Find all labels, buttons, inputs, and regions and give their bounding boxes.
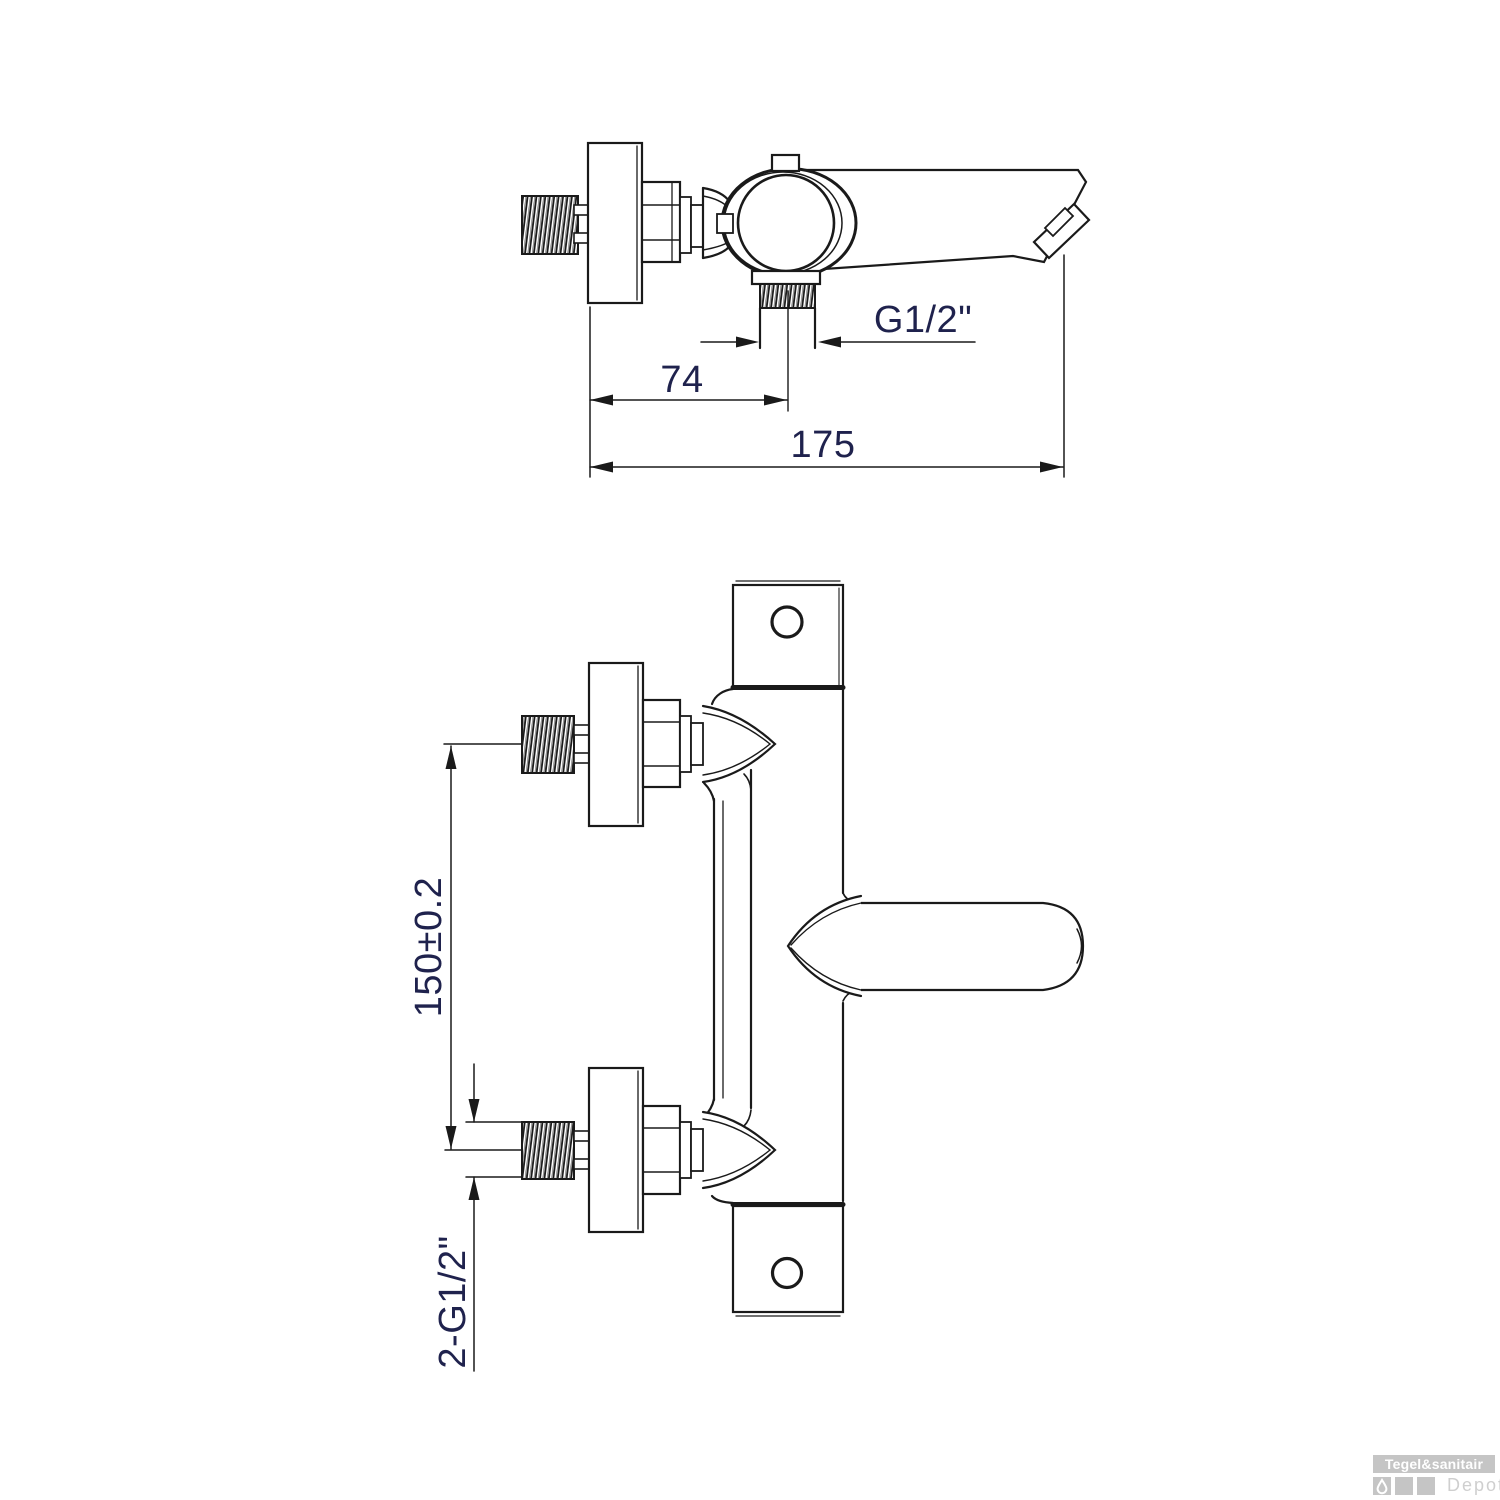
connector-tab (574, 725, 589, 735)
wall-plate (588, 143, 642, 303)
upper-inlet-assembly (522, 663, 703, 826)
technical-drawing-page: G1/2" 74 175 150±0.2 2-G1/2" Tegel&sanit… (0, 0, 1500, 1500)
watermark-square (1417, 1477, 1435, 1495)
wall-plate (589, 1068, 643, 1232)
upper-inlet-cone (703, 706, 775, 782)
union-nut (643, 1106, 680, 1194)
dimension-outlet-thread: G1/2" (858, 299, 988, 341)
faucet-dimension-drawing (0, 0, 1500, 1500)
diverter-button (772, 155, 799, 171)
dimension-inlet-thread: 2-G1/2" (432, 1217, 474, 1387)
thread-nipple (522, 1122, 574, 1179)
watermark: Tegel&sanitair Depot (1373, 1455, 1495, 1495)
thread-nipple (522, 716, 574, 773)
union-nut (642, 182, 680, 262)
dimension-total-length: 175 (777, 424, 869, 466)
wall-plate (589, 663, 643, 826)
connector-tab (574, 753, 589, 763)
thread-nipple (522, 196, 578, 254)
dimension-inlet-spacing: 150±0.2 (408, 862, 450, 1032)
dial-step (717, 214, 733, 233)
water-drop-icon (1373, 1477, 1391, 1495)
watermark-brand: Tegel&sanitair (1373, 1455, 1495, 1473)
watermark-row: Depot (1373, 1477, 1495, 1495)
connector-tab (574, 233, 588, 243)
front-view (444, 581, 1083, 1371)
connector-tab (574, 1159, 589, 1169)
connector-tab (574, 1131, 589, 1141)
dimension-wall-to-outlet: 74 (644, 359, 720, 401)
bottom-outlet (752, 271, 820, 411)
lower-bracket (733, 1205, 843, 1317)
union-nut (643, 700, 680, 787)
temperature-handle (788, 893, 1083, 1001)
lower-inlet-assembly (522, 1068, 703, 1232)
connector-tab (574, 205, 588, 215)
watermark-square-drop (1373, 1477, 1391, 1495)
upper-bracket (733, 581, 843, 688)
watermark-square (1395, 1477, 1413, 1495)
handle-cone (788, 896, 861, 996)
watermark-suffix: Depot (1447, 1475, 1500, 1496)
side-inlet-assembly (522, 143, 730, 303)
lower-inlet-cone (703, 1112, 775, 1188)
